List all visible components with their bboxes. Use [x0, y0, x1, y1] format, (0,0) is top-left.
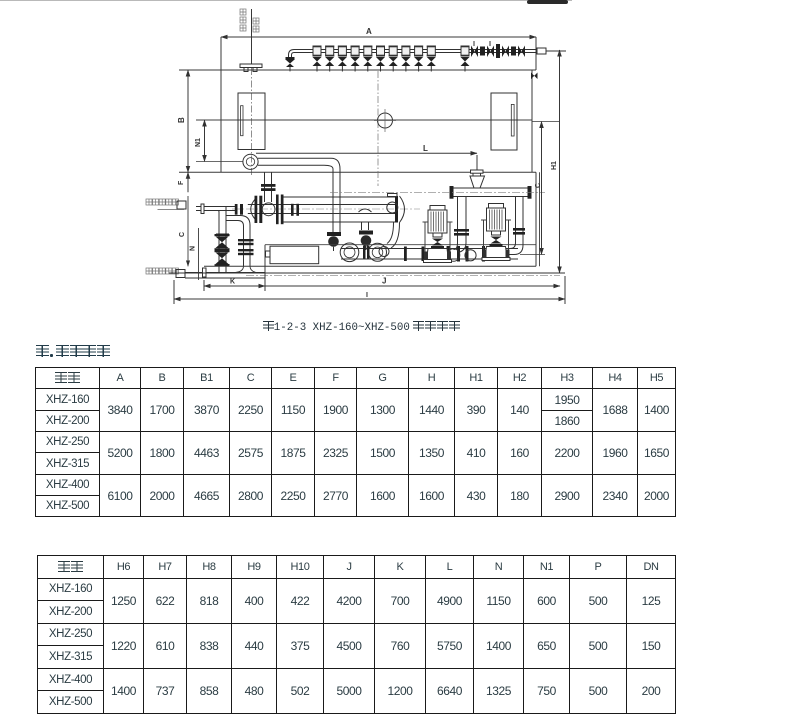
svg-text:N1: N1 — [195, 138, 202, 147]
svg-text:K: K — [230, 279, 235, 286]
svg-text:N: N — [190, 246, 197, 251]
svg-text:I: I — [366, 292, 368, 299]
svg-text:L: L — [423, 144, 428, 153]
svg-text:C: C — [535, 183, 542, 188]
svg-text:A: A — [366, 27, 372, 36]
svg-text:J: J — [382, 277, 386, 286]
svg-text:F: F — [178, 180, 185, 185]
svg-text:H1: H1 — [551, 161, 558, 170]
svg-text:B: B — [177, 117, 186, 123]
svg-text:C: C — [179, 232, 186, 237]
